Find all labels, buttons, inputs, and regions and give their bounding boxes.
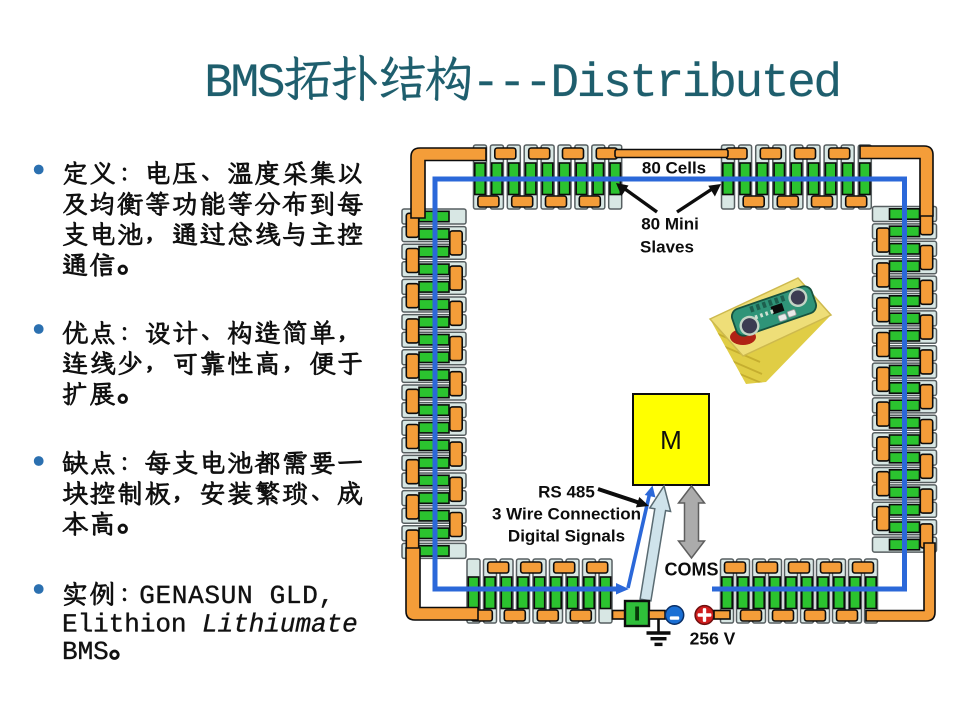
svg-text:80 Cells: 80 Cells <box>642 159 706 178</box>
svg-text:M: M <box>660 425 682 455</box>
svg-text:256 V: 256 V <box>690 629 736 649</box>
svg-text:RS 485: RS 485 <box>538 483 595 502</box>
svg-text:Slaves: Slaves <box>640 238 694 257</box>
svg-text:COMS: COMS <box>665 560 719 580</box>
svg-text:Digital Signals: Digital Signals <box>508 527 625 546</box>
svg-text:3 Wire Connection: 3 Wire Connection <box>492 505 641 524</box>
svg-text:80 Mini: 80 Mini <box>641 215 699 234</box>
